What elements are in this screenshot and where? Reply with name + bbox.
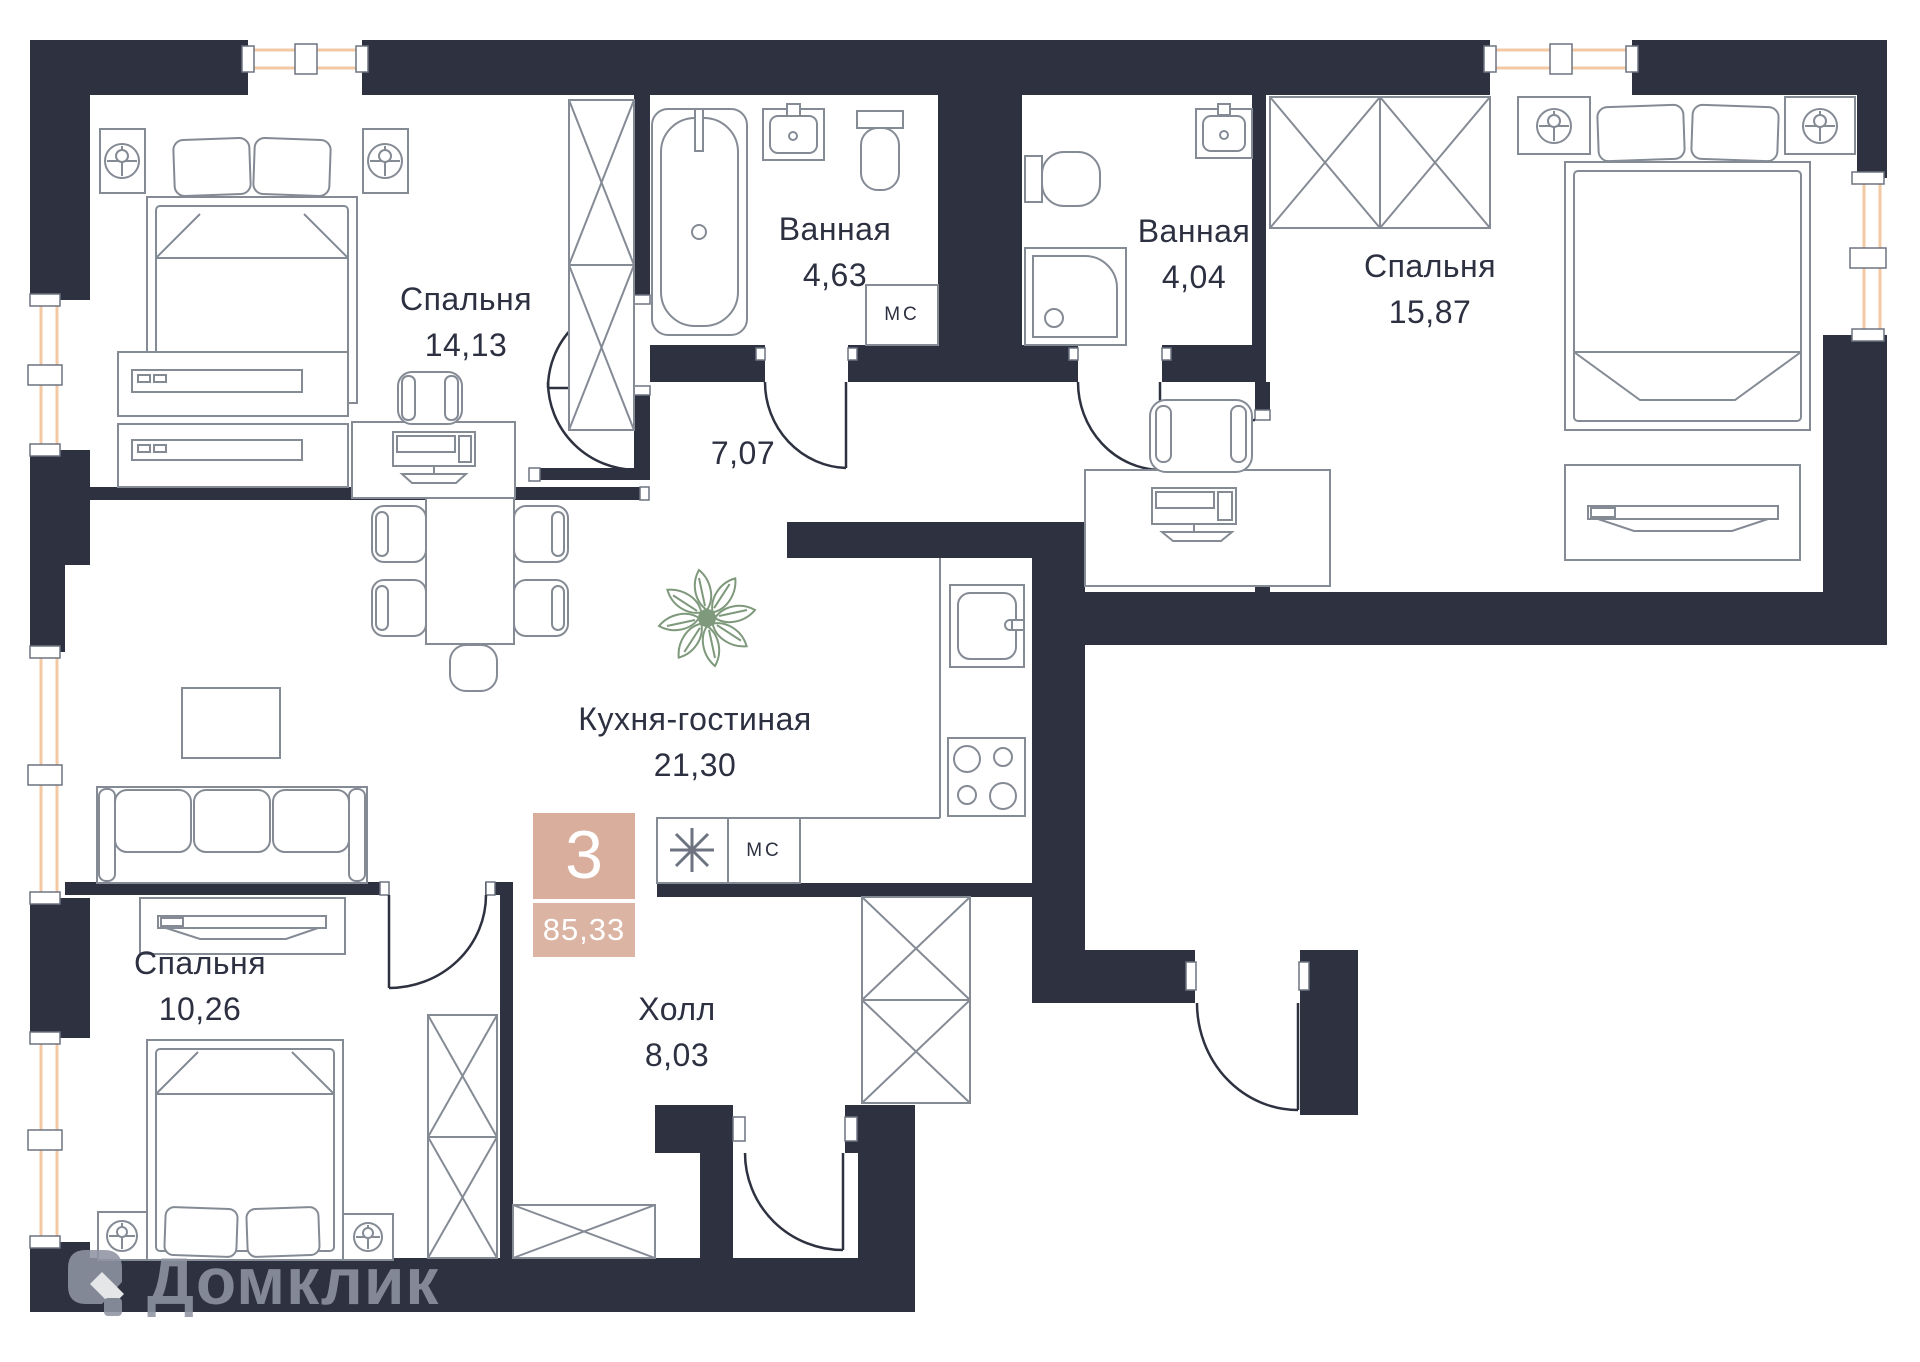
room-name: Кухня-гостиная — [495, 696, 895, 742]
lamp-icon — [368, 144, 402, 178]
tv-console — [1565, 465, 1800, 560]
lamp-icon — [1803, 109, 1837, 143]
room-area: 4,63 — [685, 252, 985, 298]
snowflake-icon — [670, 828, 714, 872]
office-chair — [1150, 400, 1252, 472]
dresser — [118, 352, 348, 416]
room-label-bedroom-2: Спальня 15,87 — [1280, 243, 1580, 335]
sink — [763, 104, 824, 160]
toilet — [1025, 152, 1100, 206]
door-entrance — [1197, 1003, 1298, 1110]
chair — [514, 580, 568, 636]
room-name: Холл — [527, 986, 827, 1032]
room-area: 14,13 — [316, 322, 616, 368]
wardrobe — [862, 897, 970, 1103]
domklik-logo-icon — [58, 1238, 133, 1323]
room-area: 15,87 — [1280, 289, 1580, 335]
plant-icon — [659, 570, 755, 666]
room-name: Спальня — [50, 940, 350, 986]
rooms-count: 3 — [533, 813, 635, 899]
door-bathroom-2 — [1078, 382, 1160, 470]
pillow — [173, 138, 251, 197]
kitchen-sink — [950, 585, 1024, 667]
office-chair — [398, 372, 462, 424]
room-name: Спальня — [1280, 243, 1580, 289]
desk-with-computer — [352, 422, 515, 498]
dresser — [118, 424, 348, 487]
room-label-corridor: 7,07 — [593, 430, 893, 476]
room-area: 7,07 — [593, 430, 893, 476]
room-area: 21,30 — [495, 742, 895, 788]
room-label-bathroom-1: Ванная 4,63 — [685, 206, 985, 298]
stool — [450, 645, 497, 691]
sink — [1196, 104, 1252, 158]
room-label-bedroom-3: Спальня 10,26 — [50, 940, 350, 1032]
room-area: 8,03 — [527, 1032, 827, 1078]
door-bedroom-3 — [389, 895, 486, 988]
floorplan-graphics — [0, 0, 1920, 1362]
coffee-table — [182, 688, 280, 758]
wardrobe — [428, 1015, 497, 1258]
watermark-text: Домклик — [147, 1243, 439, 1319]
room-label-hall: Холл 8,03 — [527, 986, 827, 1078]
room-name: Спальня — [316, 276, 616, 322]
bedroom-2-furniture — [1085, 97, 1855, 586]
wardrobe — [569, 100, 634, 430]
pillow — [1597, 105, 1685, 162]
room-label-bedroom-1: Спальня 14,13 — [316, 276, 616, 368]
watermark: Домклик — [58, 1238, 439, 1323]
room-area: 10,26 — [50, 986, 350, 1032]
sofa — [97, 787, 367, 883]
double-bed — [1565, 162, 1810, 430]
total-area: 85,33 — [533, 903, 635, 957]
cooktop — [948, 738, 1025, 816]
chair — [372, 506, 426, 562]
apartment-badge: 3 85,33 — [533, 813, 635, 957]
lamp-icon — [105, 144, 139, 178]
pillow — [253, 138, 331, 197]
washing-machine-label: МС — [866, 304, 938, 326]
floorplan-canvas: Спальня 14,13 Ванная 4,63 Ванная 4,04 Сп… — [0, 0, 1920, 1362]
wardrobe — [513, 1205, 655, 1258]
door-vestibule — [745, 1153, 843, 1250]
washing-machine-label: МС — [728, 840, 800, 862]
chair — [514, 506, 568, 562]
desk-with-computer — [1085, 470, 1330, 586]
room-name: Ванная — [685, 206, 985, 252]
room-label-kitchen-living: Кухня-гостиная 21,30 — [495, 696, 895, 788]
chair — [372, 580, 426, 636]
dining-table — [426, 498, 514, 644]
pillow — [1691, 105, 1779, 162]
toilet — [857, 111, 903, 190]
lamp-icon — [1537, 109, 1571, 143]
